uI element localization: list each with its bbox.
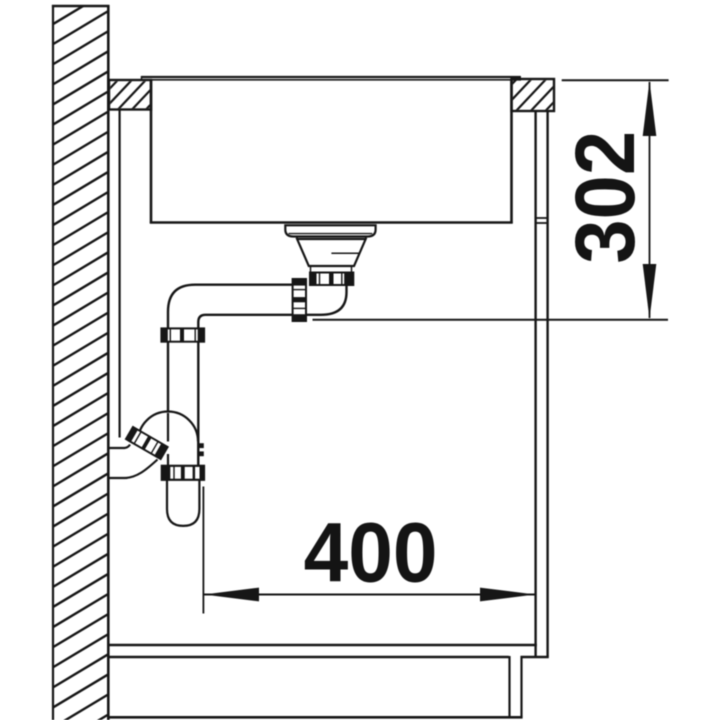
svg-text:400: 400 — [304, 505, 438, 599]
svg-text:302: 302 — [558, 131, 652, 264]
